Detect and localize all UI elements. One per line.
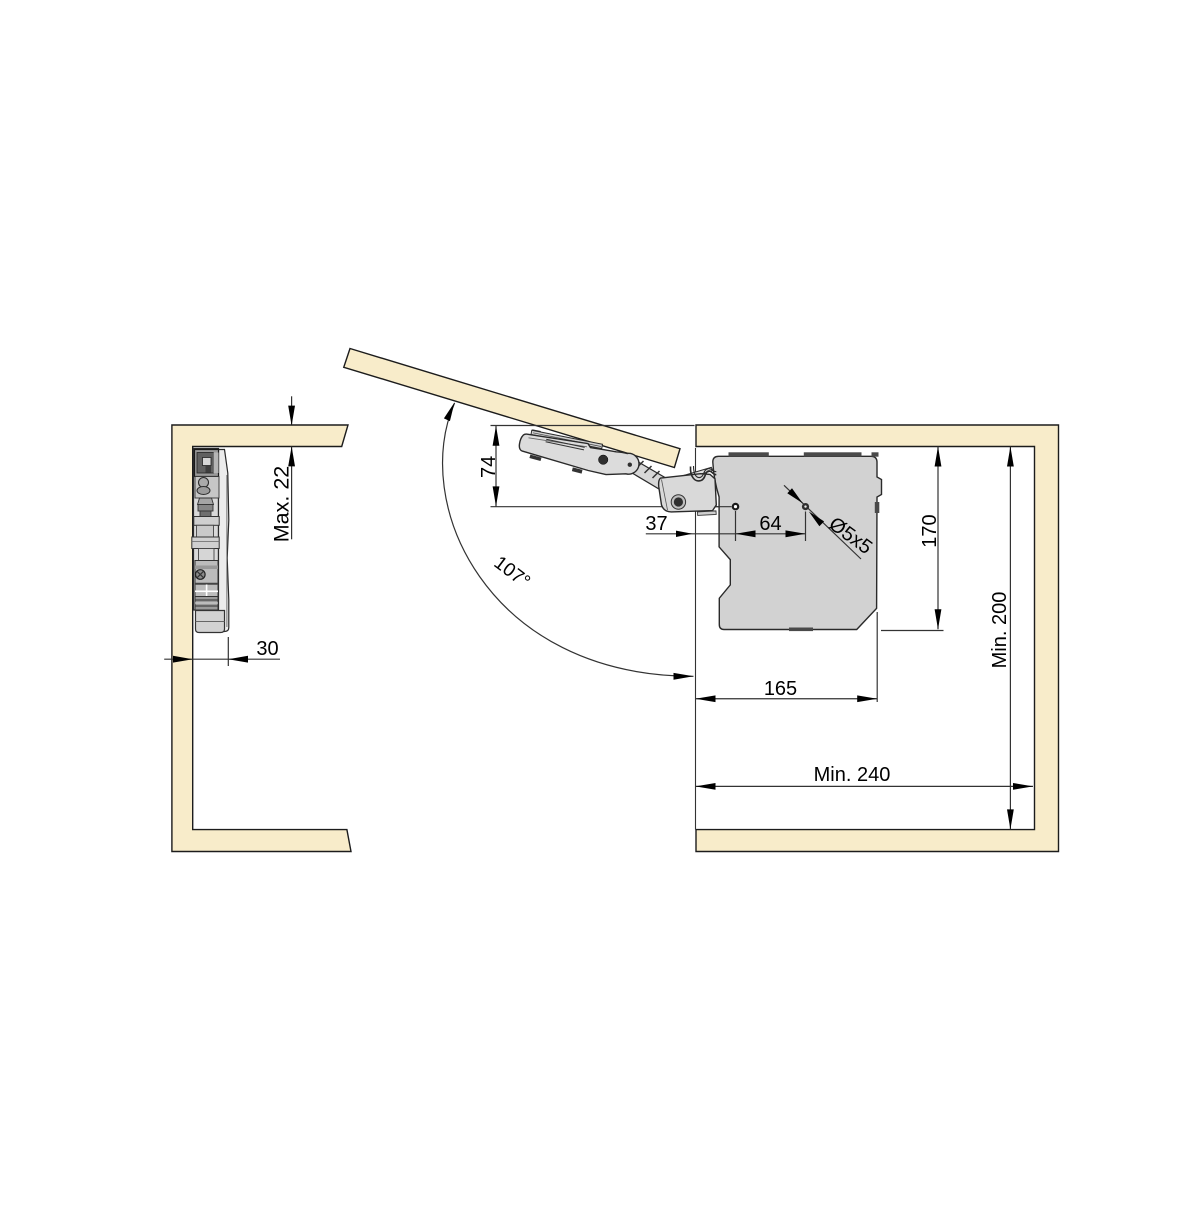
svg-text:Min. 240: Min. 240 xyxy=(814,764,891,786)
svg-text:64: 64 xyxy=(759,513,781,535)
svg-text:170: 170 xyxy=(919,514,941,547)
svg-text:Max. 22: Max. 22 xyxy=(270,466,294,542)
svg-text:30: 30 xyxy=(256,638,278,660)
svg-text:Min. 200: Min. 200 xyxy=(989,592,1011,669)
svg-text:37: 37 xyxy=(645,513,667,535)
svg-text:165: 165 xyxy=(764,678,797,700)
svg-text:74: 74 xyxy=(478,456,500,478)
